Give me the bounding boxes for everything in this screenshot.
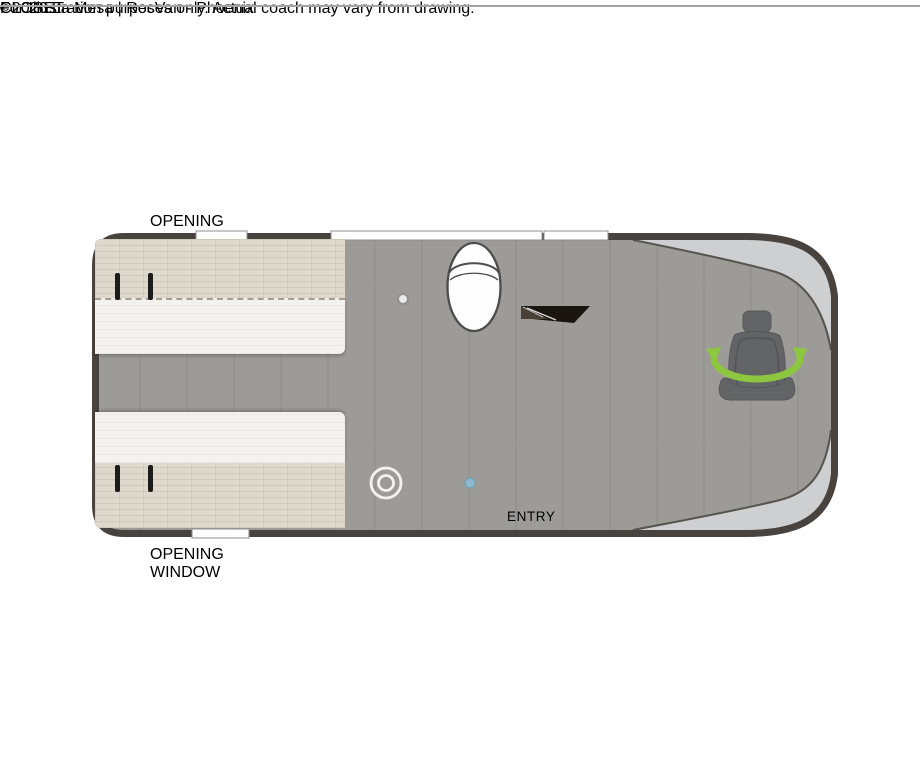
removable-table-box	[103, 352, 212, 415]
sink-basin	[448, 453, 492, 517]
sofa-top-mattress	[95, 298, 345, 354]
floorplan-page: ENTRY	[0, 0, 920, 767]
sofa-bottom-mattress	[95, 412, 345, 465]
portable-cooktop-unit	[366, 448, 406, 508]
top-divider-line	[0, 5, 920, 7]
entry-step-strip	[497, 531, 621, 538]
window-bottom-rear	[192, 529, 249, 538]
closet-cabinet	[348, 233, 382, 357]
swivel-chair-driver	[603, 262, 696, 360]
sofa-bottom-seat	[95, 463, 345, 528]
fridge-box	[520, 263, 590, 306]
sofa-top-backrest	[95, 239, 345, 300]
shower-threshold	[387, 347, 458, 353]
entry-door-band: ENTRY	[499, 508, 629, 531]
wet-bath-room	[382, 233, 512, 350]
swivel-chair-passenger	[603, 407, 696, 505]
entry-label: ENTRY	[507, 509, 556, 524]
